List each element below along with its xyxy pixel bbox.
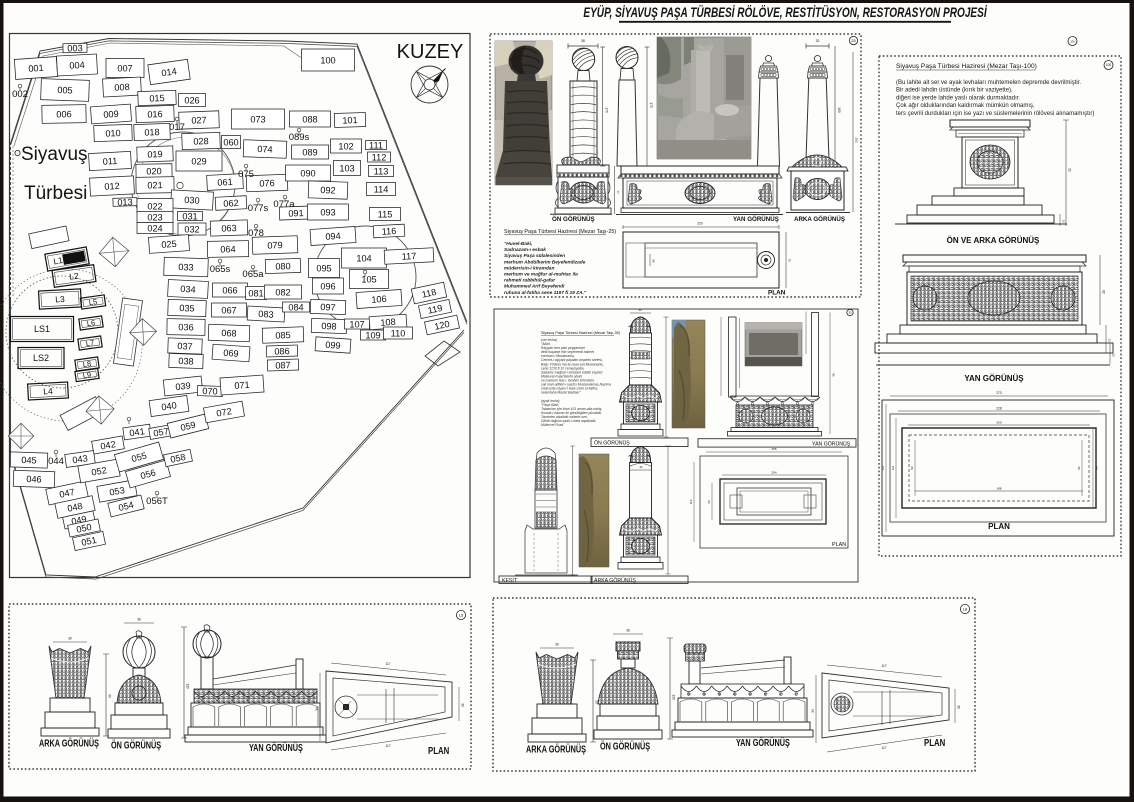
svg-text:009: 009 [103, 109, 119, 120]
svg-text:026: 026 [184, 95, 199, 105]
svg-text:Muhammed Arif Beyefendi: Muhammed Arif Beyefendi [504, 284, 565, 290]
svg-text:099: 099 [325, 340, 341, 351]
svg-text:Siyavuş Paşa Türbesi Haziresi: Siyavuş Paşa Türbesi Haziresi (Mezar Taş… [541, 331, 621, 335]
svg-text:13: 13 [1062, 219, 1066, 223]
svg-text:097: 097 [320, 302, 336, 313]
svg-text:YAN GÖRÜNÜŞ: YAN GÖRÜNÜŞ [249, 742, 303, 754]
svg-text:200: 200 [996, 421, 1001, 425]
svg-text:013: 013 [117, 197, 133, 208]
svg-text:100: 100 [1070, 40, 1075, 44]
svg-text:070: 070 [202, 386, 218, 397]
svg-text:80: 80 [832, 373, 836, 377]
svg-text:093: 093 [320, 207, 335, 217]
svg-text:107: 107 [349, 319, 364, 329]
svg-text:068: 068 [221, 328, 237, 339]
svg-text:094: 094 [325, 231, 341, 242]
svg-text:ARKA GÖRÜNÜŞ: ARKA GÖRÜNÜŞ [39, 737, 99, 749]
svg-text:selamlaha Maziel Badiası": selamlaha Maziel Badiası" [541, 391, 581, 395]
svg-text:033: 033 [178, 262, 194, 273]
svg-text:098: 098 [321, 321, 337, 332]
svg-text:ÖN GÖRÜNÜŞ: ÖN GÖRÜNÜŞ [111, 739, 161, 751]
svg-text:Çok ağır olduklarından kaldırm: Çok ağır olduklarından kaldırmak mümkün … [896, 103, 1035, 109]
svg-text:079: 079 [267, 240, 283, 251]
svg-text:Siyavuş Paşa sülalesinden: Siyavuş Paşa sülalesinden [504, 253, 565, 259]
svg-text:117: 117 [385, 662, 390, 666]
svg-text:028: 028 [193, 136, 209, 147]
svg-text:34: 34 [315, 707, 319, 711]
svg-text:Bir adedi lahdin üstünde (kırı: Bir adedi lahdin üstünde (kırık bir vazi… [896, 88, 1013, 94]
svg-text:062: 062 [223, 198, 239, 209]
svg-text:60: 60 [707, 500, 711, 504]
svg-text:84: 84 [1095, 466, 1099, 470]
svg-text:96: 96 [652, 259, 656, 263]
svg-text:106: 106 [371, 294, 387, 305]
svg-text:92: 92 [1068, 168, 1072, 172]
svg-text:100: 100 [320, 55, 335, 65]
svg-text:L8: L8 [82, 359, 92, 369]
svg-text:071: 071 [234, 380, 250, 391]
svg-text:092: 092 [320, 185, 336, 196]
svg-text:110: 110 [391, 328, 406, 338]
svg-text:L6: L6 [86, 318, 96, 328]
svg-text:130: 130 [186, 683, 190, 689]
svg-text:36: 36 [626, 629, 630, 633]
svg-text:PLAN: PLAN [768, 290, 786, 297]
svg-text:PLAN: PLAN [428, 745, 450, 756]
svg-text:204: 204 [771, 471, 776, 475]
svg-text:L8: L8 [963, 606, 968, 611]
svg-text:063: 063 [221, 223, 237, 234]
svg-text:16: 16 [1112, 353, 1116, 357]
svg-text:006: 006 [56, 109, 72, 119]
svg-text:066: 066 [222, 285, 237, 295]
svg-text:023: 023 [147, 212, 162, 222]
svg-text:273: 273 [996, 391, 1002, 395]
svg-text:ters çevrili durdukları için i: ters çevrili durdukları için ise yazı ve… [896, 111, 1094, 117]
svg-text:045: 045 [21, 455, 37, 466]
svg-text:PLAN: PLAN [988, 522, 1010, 531]
svg-text:108: 108 [380, 317, 396, 328]
svg-text:YAN GÖRÜNÜŞ: YAN GÖRÜNÜŞ [812, 440, 851, 447]
svg-text:Sadrıazam-ı esbak: Sadrıazam-ı esbak [504, 247, 546, 253]
svg-text:ÖN GÖRÜNÜŞ: ÖN GÖRÜNÜŞ [594, 440, 630, 447]
svg-text:KESİT: KESİT [502, 577, 518, 584]
svg-text:086: 086 [274, 346, 290, 357]
svg-text:095: 095 [316, 263, 331, 273]
svg-text:90: 90 [108, 694, 112, 698]
svg-text:020: 020 [146, 166, 162, 176]
svg-text:030: 030 [184, 195, 200, 206]
svg-text:LS1: LS1 [34, 324, 50, 334]
svg-text:EYÜP, SİYAVUŞ PAŞA TÜRBESİ RÖL: EYÜP, SİYAVUŞ PAŞA TÜRBESİ RÖLÖVE, RESTİ… [583, 3, 987, 20]
svg-text:021: 021 [147, 180, 163, 190]
svg-text:018: 018 [144, 127, 160, 138]
svg-text:111: 111 [369, 140, 383, 150]
svg-text:096: 096 [320, 281, 335, 291]
svg-text:043: 043 [72, 453, 89, 465]
svg-text:82: 82 [1077, 466, 1081, 470]
svg-text:083: 083 [258, 309, 274, 320]
svg-text:25: 25 [851, 38, 856, 43]
svg-text:105: 105 [361, 274, 376, 284]
svg-text:117: 117 [385, 744, 390, 748]
svg-text:005: 005 [57, 85, 73, 96]
svg-text:019: 019 [147, 149, 163, 160]
svg-text:027: 027 [191, 115, 207, 126]
svg-text:084: 084 [288, 302, 303, 312]
svg-text:080: 080 [275, 261, 291, 272]
svg-text:"Huvel-Baki,: "Huvel-Baki, [504, 241, 532, 247]
svg-text:ÖN VE ARKA GÖRÜNÜŞ: ÖN VE ARKA GÖRÜNÜŞ [947, 236, 1040, 245]
svg-text:029: 029 [191, 156, 206, 166]
svg-text:34: 34 [811, 709, 815, 713]
svg-text:30: 30 [68, 637, 72, 641]
svg-text:113: 113 [374, 166, 389, 176]
svg-text:109: 109 [365, 330, 380, 340]
svg-text:115: 115 [378, 209, 393, 219]
svg-text:011: 011 [102, 156, 117, 167]
svg-text:220: 220 [697, 222, 703, 226]
svg-text:117: 117 [881, 664, 886, 668]
svg-text:014: 014 [161, 66, 178, 78]
svg-text:117: 117 [401, 251, 416, 262]
svg-text:016: 016 [147, 109, 163, 120]
svg-text:YAN GÖRÜNÜŞ: YAN GÖRÜNÜŞ [733, 216, 779, 223]
svg-text:170: 170 [649, 102, 653, 108]
svg-text:040: 040 [161, 400, 178, 412]
svg-text:ARKA GÖRÜNÜŞ: ARKA GÖRÜNÜŞ [594, 577, 636, 584]
svg-text:060: 060 [223, 137, 238, 147]
svg-text:255: 255 [771, 447, 776, 451]
svg-text:(Bu lahite ait ser ve ayak lev: (Bu lahite ait ser ve ayak levhaları muh… [896, 80, 1081, 86]
svg-text:077a: 077a [273, 199, 295, 210]
svg-text:188: 188 [996, 487, 1001, 491]
svg-text:36: 36 [581, 39, 585, 43]
svg-text:038: 038 [178, 356, 194, 367]
svg-text:40: 40 [638, 308, 642, 312]
svg-text:024: 024 [147, 223, 162, 233]
svg-text:PLAN: PLAN [924, 737, 946, 748]
svg-text:L7: L7 [85, 338, 95, 348]
svg-text:30: 30 [957, 705, 961, 709]
svg-text:044: 044 [48, 456, 64, 467]
svg-text:ruhuna al-fatiha sene 1197 fi: ruhuna al-fatiha sene 1197 fi 19 ZA." [504, 290, 587, 296]
svg-text:PLAN: PLAN [832, 542, 846, 548]
svg-text:015: 015 [149, 93, 165, 104]
svg-text:190: 190 [837, 107, 841, 113]
svg-text:L3: L3 [55, 294, 65, 304]
svg-text:170: 170 [605, 107, 609, 113]
svg-text:082: 082 [275, 287, 290, 297]
svg-text:037: 037 [177, 341, 193, 352]
svg-text:YAN GÖRÜNÜŞ: YAN GÖRÜNÜŞ [736, 737, 790, 749]
svg-text:Mülevvel Fuad": Mülevvel Fuad" [541, 423, 565, 427]
svg-text:090: 090 [300, 168, 315, 178]
svg-text:010: 010 [105, 128, 121, 139]
svg-text:022: 022 [147, 201, 162, 211]
svg-text:034: 034 [180, 284, 196, 295]
svg-text:085: 085 [275, 330, 291, 341]
svg-text:114: 114 [374, 184, 389, 194]
svg-text:111: 111 [891, 465, 895, 470]
svg-text:36: 36 [137, 618, 141, 622]
svg-text:Siyavuş Paşa Türbesi Haziresi: Siyavuş Paşa Türbesi Haziresi (Mezar Taş… [896, 63, 1037, 70]
svg-text:008: 008 [114, 82, 130, 93]
svg-text:82: 82 [910, 466, 914, 470]
svg-text:35: 35 [848, 311, 852, 315]
svg-text:merhum ve mağfur al-muhtac ila: merhum ve mağfur al-muhtac ila [504, 272, 578, 278]
svg-text:82: 82 [1102, 290, 1106, 294]
svg-text:112: 112 [372, 152, 387, 162]
svg-text:diğeri ise yerde lahde yaslı o: diğeri ise yerde lahde yaslı olarak durm… [896, 95, 1020, 101]
svg-text:ARKA GÖRÜNÜŞ: ARKA GÖRÜNÜŞ [526, 743, 586, 755]
svg-text:116: 116 [381, 226, 396, 237]
svg-text:004: 004 [69, 60, 85, 71]
svg-text:087: 087 [275, 360, 291, 371]
svg-text:064: 064 [220, 244, 236, 254]
svg-text:Siyavuş: Siyavuş [21, 144, 88, 165]
svg-text:041: 041 [129, 426, 146, 438]
svg-text:073: 073 [250, 114, 265, 124]
svg-text:Siyavuş Paşa Türbesi Haziresi: Siyavuş Paşa Türbesi Haziresi (Mezar Taş… [504, 229, 616, 235]
svg-text:130: 130 [672, 694, 676, 700]
svg-text:L5: L5 [88, 297, 98, 307]
svg-text:31: 31 [639, 465, 643, 469]
svg-text:031: 031 [182, 211, 197, 221]
svg-text:003: 003 [67, 43, 83, 53]
svg-text:YAN GÖRÜNÜŞ: YAN GÖRÜNÜŞ [964, 374, 1024, 383]
svg-text:L2: L2 [69, 270, 80, 281]
svg-text:117: 117 [881, 746, 886, 750]
svg-text:069: 069 [223, 348, 239, 359]
svg-text:100: 100 [1106, 63, 1112, 67]
svg-text:32: 32 [816, 39, 820, 43]
svg-text:L9: L9 [82, 370, 92, 380]
svg-text:074: 074 [257, 144, 273, 155]
svg-text:77: 77 [616, 190, 620, 194]
svg-text:103: 103 [339, 163, 354, 173]
svg-text:101: 101 [342, 115, 358, 126]
svg-text:035: 035 [179, 303, 195, 314]
svg-text:müderrisin-i kiramdan: müderrisin-i kiramdan [504, 265, 554, 271]
svg-text:228: 228 [996, 407, 1002, 411]
svg-text:061: 061 [217, 177, 233, 188]
svg-text:102: 102 [338, 141, 353, 151]
svg-text:001: 001 [28, 63, 44, 74]
svg-text:13: 13 [1108, 338, 1112, 342]
svg-text:012: 012 [104, 181, 120, 192]
svg-text:116: 116 [689, 499, 693, 504]
svg-text:KUZEY: KUZEY [397, 41, 464, 63]
svg-text:ÖN GÖRÜNÜŞ: ÖN GÖRÜNÜŞ [552, 216, 595, 223]
svg-text:30: 30 [555, 643, 559, 647]
svg-text:75: 75 [788, 258, 792, 262]
svg-text:L1: L1 [53, 255, 64, 267]
svg-text:032: 032 [184, 224, 199, 234]
svg-text:L5: L5 [459, 612, 464, 617]
svg-text:089: 089 [302, 147, 317, 157]
svg-text:067: 067 [221, 305, 236, 315]
svg-text:036: 036 [178, 322, 194, 332]
svg-text:081: 081 [248, 288, 263, 298]
svg-text:30: 30 [461, 703, 465, 707]
svg-text:076: 076 [259, 178, 275, 189]
svg-text:007: 007 [117, 63, 132, 73]
svg-text:ARKA GÖRÜNÜŞ: ARKA GÖRÜNÜŞ [794, 216, 845, 223]
svg-text:137: 137 [881, 465, 885, 470]
svg-text:065a: 065a [242, 269, 264, 280]
svg-text:LS2: LS2 [33, 353, 49, 363]
svg-text:merhum Abdülkerim Beyefendizad: merhum Abdülkerim Beyefendizade [504, 259, 586, 265]
svg-text:104: 104 [356, 253, 371, 263]
svg-text:025: 025 [161, 239, 177, 250]
svg-text:Türbesi: Türbesi [24, 183, 87, 204]
svg-text:L4: L4 [43, 386, 53, 396]
svg-text:039: 039 [175, 381, 191, 393]
svg-text:046: 046 [26, 474, 42, 485]
svg-text:ÖN GÖRÜNÜŞ: ÖN GÖRÜNÜŞ [600, 740, 650, 752]
svg-text:202: 202 [855, 137, 859, 142]
svg-text:088: 088 [302, 114, 317, 124]
svg-text:rahmeti rabbihûl-gafur: rahmeti rabbihûl-gafur [504, 278, 556, 284]
